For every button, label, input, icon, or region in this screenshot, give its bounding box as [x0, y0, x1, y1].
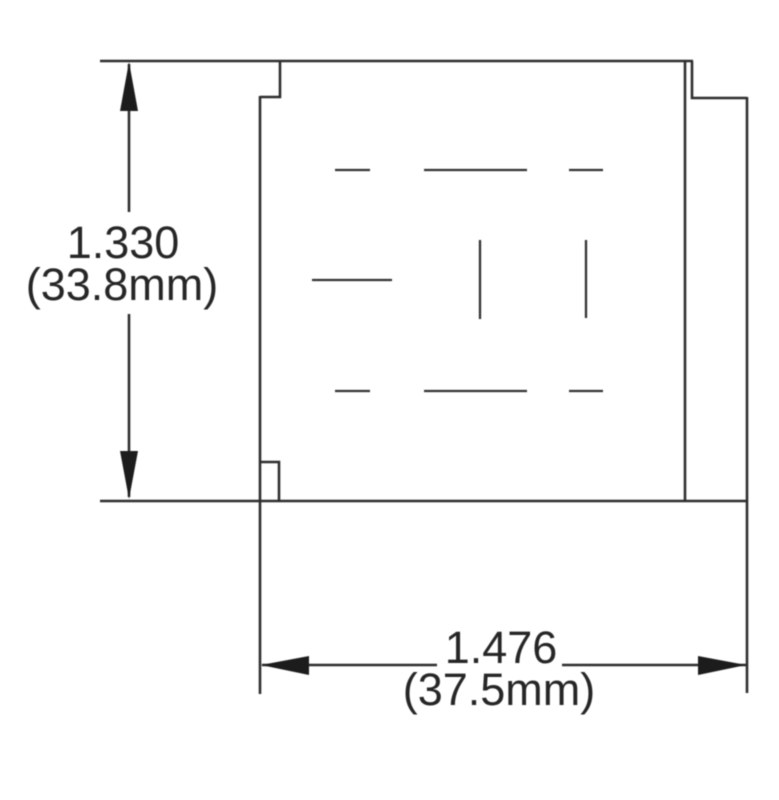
svg-text:(33.8mm): (33.8mm)	[26, 259, 219, 310]
svg-text:(37.5mm): (37.5mm)	[403, 664, 596, 715]
